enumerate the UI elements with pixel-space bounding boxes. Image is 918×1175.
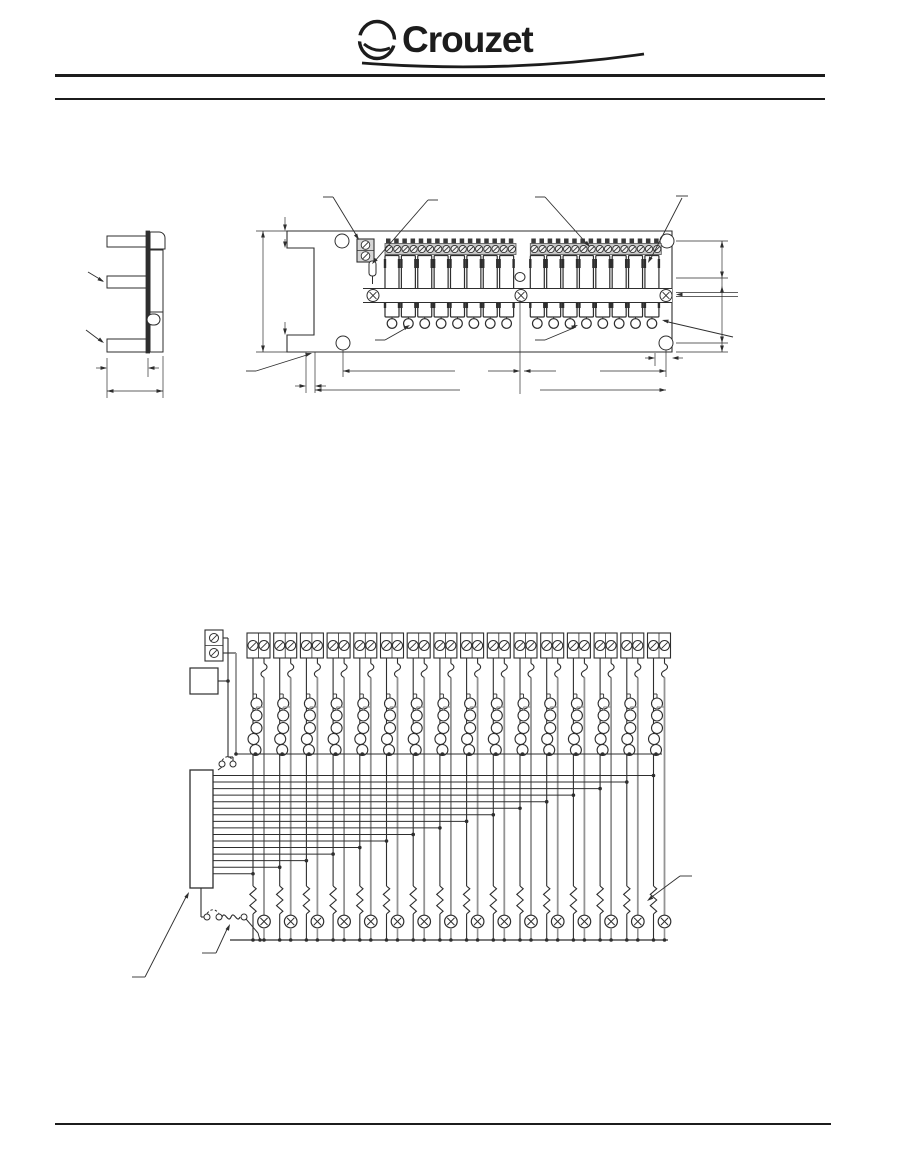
- resistor: [490, 886, 496, 942]
- channel-terminal-block: [514, 633, 537, 658]
- socket-pins: [488, 694, 504, 756]
- schematic-channel: [487, 633, 510, 942]
- channel-terminal-block: [434, 633, 457, 658]
- indicator-led: [605, 915, 618, 942]
- rail-screw: [660, 290, 672, 302]
- fuse-icon: [528, 658, 534, 678]
- schematic-channel: [247, 633, 270, 942]
- indicator-led: [418, 915, 431, 942]
- schematic-channel: [567, 633, 590, 942]
- socket-pins: [568, 694, 584, 756]
- schematic-channel: [514, 633, 537, 942]
- resistor: [277, 886, 283, 942]
- socket-pins: [435, 694, 451, 756]
- resistor: [383, 886, 389, 942]
- resistor: [463, 886, 469, 942]
- resistor: [303, 886, 309, 942]
- fuse-icon: [314, 658, 320, 678]
- fuse-icon: [448, 658, 454, 678]
- channel-terminal-block: [247, 633, 270, 658]
- channel-terminal-block: [354, 633, 377, 658]
- fuse-icon: [421, 658, 427, 678]
- resistor: [410, 886, 416, 942]
- socket-pins: [462, 694, 478, 756]
- schematic-channel: [648, 633, 671, 942]
- fuse-icon: [395, 658, 401, 678]
- schematic-channel: [621, 633, 644, 942]
- indicator-led: [365, 915, 378, 942]
- fuse-icon: [261, 658, 267, 678]
- header-rule-bottom: [55, 98, 825, 100]
- resistor: [330, 886, 336, 942]
- indicator-led: [578, 915, 591, 942]
- schematic-channel: [594, 633, 617, 942]
- indicator-led: [311, 915, 324, 942]
- document-page: Crouzet: [0, 0, 918, 1175]
- indicator-led: [445, 915, 458, 942]
- supply-box: [190, 668, 230, 694]
- socket-pins: [328, 694, 344, 756]
- fuse-icon: [608, 658, 614, 678]
- socket-pins: [595, 694, 611, 756]
- schematic-channel: [354, 633, 377, 942]
- brand-text: Crouzet: [402, 19, 533, 60]
- fuse-icon: [581, 658, 587, 678]
- fuse-icon: [662, 658, 668, 678]
- indicator-led: [498, 915, 511, 942]
- indicator-led: [658, 915, 671, 942]
- rail-screw: [515, 290, 527, 302]
- relay-bank: [529, 239, 661, 329]
- rail-screw: [367, 290, 379, 302]
- socket-pins: [515, 694, 531, 756]
- socket-pins: [301, 694, 317, 756]
- indicator-led: [391, 915, 404, 942]
- fuse-icon: [341, 658, 347, 678]
- schematic-channel: [461, 633, 484, 942]
- channel-terminal-block: [407, 633, 430, 658]
- channel-terminal-block: [461, 633, 484, 658]
- fuse-icon: [555, 658, 561, 678]
- indicator-led: [551, 915, 564, 942]
- panel-fuse: [369, 261, 376, 284]
- fuse-icon: [501, 658, 507, 678]
- indicator-led: [471, 915, 484, 942]
- channel-terminal-block: [621, 633, 644, 658]
- indicator-led: [338, 915, 351, 942]
- channel-terminal-block: [648, 633, 671, 658]
- channel-terminal-block: [541, 633, 564, 658]
- channel-terminal-block: [274, 633, 297, 658]
- resistor: [570, 886, 576, 942]
- indicator-led: [525, 915, 538, 942]
- fuse-icon: [368, 658, 374, 678]
- indicator-led: [632, 915, 645, 942]
- resistor: [437, 886, 443, 942]
- indicator-led: [284, 915, 297, 942]
- side-view: [86, 231, 165, 398]
- fuse-icon: [475, 658, 481, 678]
- channel-terminal-block: [487, 633, 510, 658]
- fuse-icon: [635, 658, 641, 678]
- panel-power-terminal: [357, 239, 374, 262]
- crouzet-logo-icon: [357, 22, 398, 59]
- jumper-link-top: [218, 757, 236, 770]
- channel-terminal-block: [567, 633, 590, 658]
- channel-terminal-block: [381, 633, 404, 658]
- resistor: [597, 886, 603, 942]
- schematic-channel: [541, 633, 564, 942]
- schematic-channel: [407, 633, 430, 942]
- channel-terminal-block: [594, 633, 617, 658]
- header-rule-top: [55, 74, 825, 77]
- socket-pins: [382, 694, 398, 756]
- resistor: [357, 886, 363, 942]
- schematic-channel: [434, 633, 457, 942]
- socket-pins: [355, 694, 371, 756]
- socket-pins: [248, 694, 264, 756]
- schematic-channel: [274, 633, 297, 942]
- socket-pins: [542, 694, 558, 756]
- socket-pins: [649, 694, 665, 756]
- schematic-channel: [327, 633, 350, 942]
- footer-rule: [55, 1123, 831, 1125]
- resistor: [544, 886, 550, 942]
- schematic-channel: [381, 633, 404, 942]
- fuse-icon: [288, 658, 294, 678]
- channel-terminal-block: [327, 633, 350, 658]
- relay-bank: [384, 239, 516, 329]
- resistor: [517, 886, 523, 942]
- resistor: [624, 886, 630, 942]
- socket-pins: [408, 694, 424, 756]
- resistor: [250, 886, 256, 942]
- channel-terminal-block: [300, 633, 323, 658]
- front-view: [246, 196, 738, 371]
- schematic-channel: [300, 633, 323, 942]
- socket-pins: [275, 694, 291, 756]
- input-connector: [190, 770, 213, 888]
- crouzet-logo: Crouzet: [0, 8, 918, 118]
- socket-pins: [622, 694, 638, 756]
